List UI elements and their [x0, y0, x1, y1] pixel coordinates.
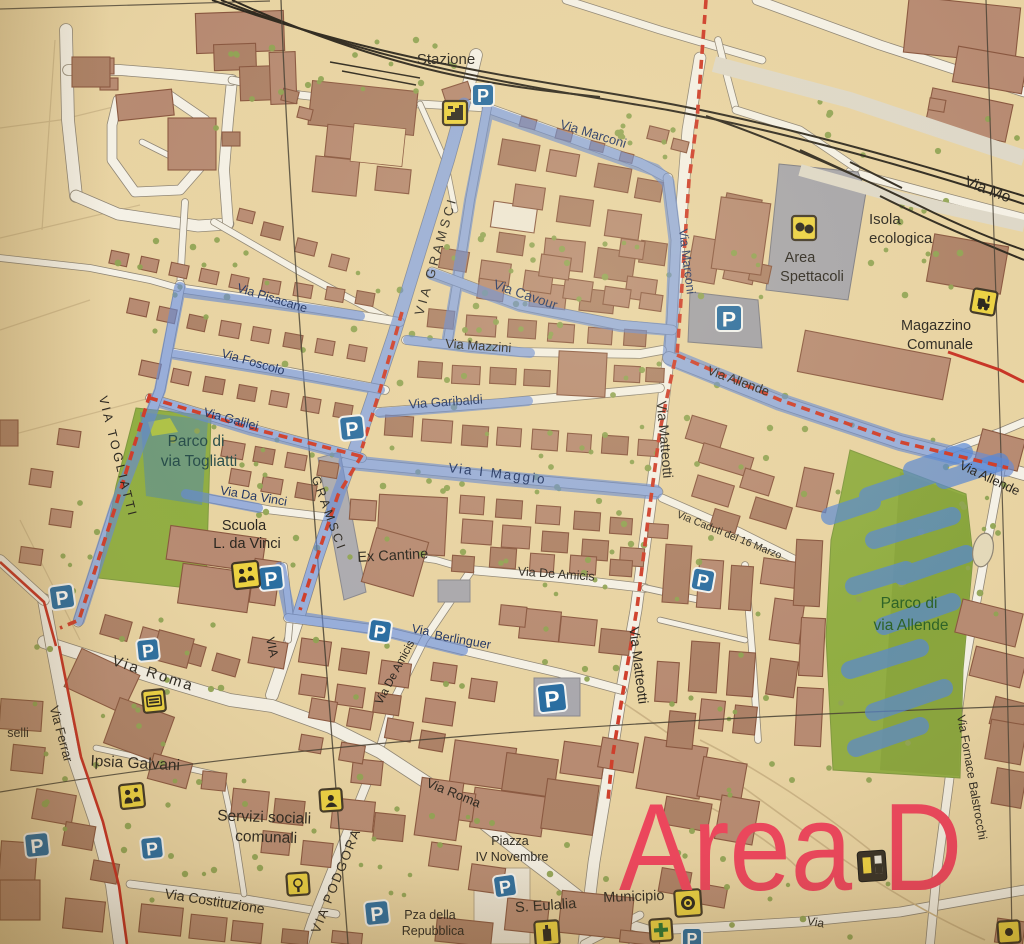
svg-text:Parco di: Parco di	[881, 595, 938, 612]
svg-text:Area: Area	[785, 250, 817, 266]
svg-text:Piazza: Piazza	[491, 834, 529, 848]
svg-text:via Togliatti: via Togliatti	[161, 453, 237, 470]
svg-text:P: P	[722, 307, 736, 331]
svg-text:Parco di: Parco di	[168, 433, 225, 450]
svg-text:P: P	[543, 685, 561, 712]
svg-text:P: P	[344, 418, 359, 441]
svg-text:P: P	[145, 838, 159, 859]
svg-text:Servizi sociali: Servizi sociali	[217, 807, 311, 827]
svg-text:Scuola: Scuola	[222, 518, 267, 534]
svg-text:P: P	[263, 568, 278, 591]
svg-text:Comunale: Comunale	[907, 337, 973, 353]
svg-text:Spettacoli: Spettacoli	[780, 269, 844, 285]
svg-text:ecologica: ecologica	[869, 230, 933, 247]
svg-text:Isola: Isola	[869, 211, 901, 228]
svg-text:Stazione: Stazione	[417, 51, 475, 68]
svg-text:P: P	[141, 640, 155, 661]
svg-text:comunali: comunali	[235, 828, 298, 847]
svg-text:Magazzino: Magazzino	[901, 318, 971, 334]
svg-text:via Allende: via Allende	[874, 617, 949, 634]
svg-text:P: P	[477, 86, 489, 106]
svg-text:L. da Vinci: L. da Vinci	[213, 536, 280, 552]
svg-text:IV Novembre: IV Novembre	[476, 850, 549, 864]
